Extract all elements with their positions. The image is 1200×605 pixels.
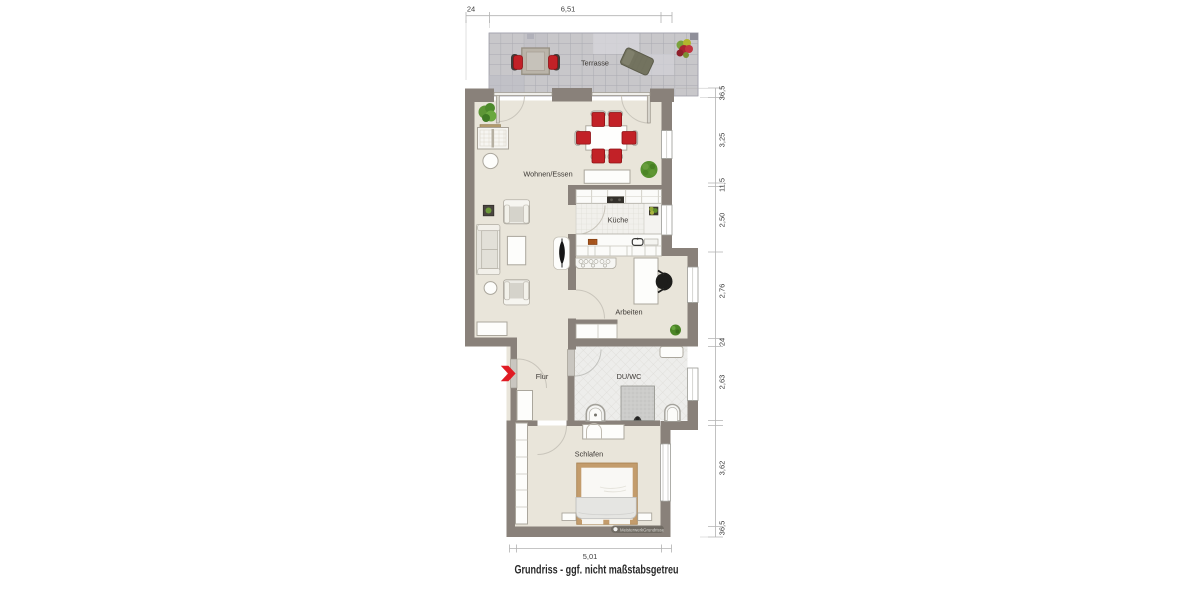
svg-text:Küche: Küche <box>608 216 629 225</box>
svg-text:2,63: 2,63 <box>718 375 727 390</box>
svg-text:Terrasse: Terrasse <box>581 59 609 68</box>
svg-text:2,50: 2,50 <box>718 213 727 228</box>
svg-text:24: 24 <box>467 5 475 14</box>
svg-text:3,25: 3,25 <box>718 133 727 148</box>
svg-text:36,5: 36,5 <box>718 86 727 101</box>
svg-text:5,01: 5,01 <box>583 552 598 561</box>
svg-text:11,5: 11,5 <box>718 178 727 192</box>
svg-text:Arbeiten: Arbeiten <box>615 308 642 317</box>
svg-text:2,76: 2,76 <box>718 284 727 299</box>
svg-text:Grundriss - ggf. nicht maßstab: Grundriss - ggf. nicht maßstabsgetreu <box>515 565 679 577</box>
svg-text:DU/WC: DU/WC <box>617 372 642 381</box>
svg-text:6,51: 6,51 <box>561 5 576 14</box>
svg-text:24: 24 <box>718 338 727 346</box>
svg-text:Flur: Flur <box>536 372 549 381</box>
svg-text:3,62: 3,62 <box>718 461 727 476</box>
svg-text:MeisterwerkGrundrisse: MeisterwerkGrundrisse <box>620 527 665 532</box>
svg-text:Wohnen/Essen: Wohnen/Essen <box>523 170 572 179</box>
svg-text:Schlafen: Schlafen <box>575 450 603 459</box>
svg-text:36,5: 36,5 <box>718 521 727 536</box>
